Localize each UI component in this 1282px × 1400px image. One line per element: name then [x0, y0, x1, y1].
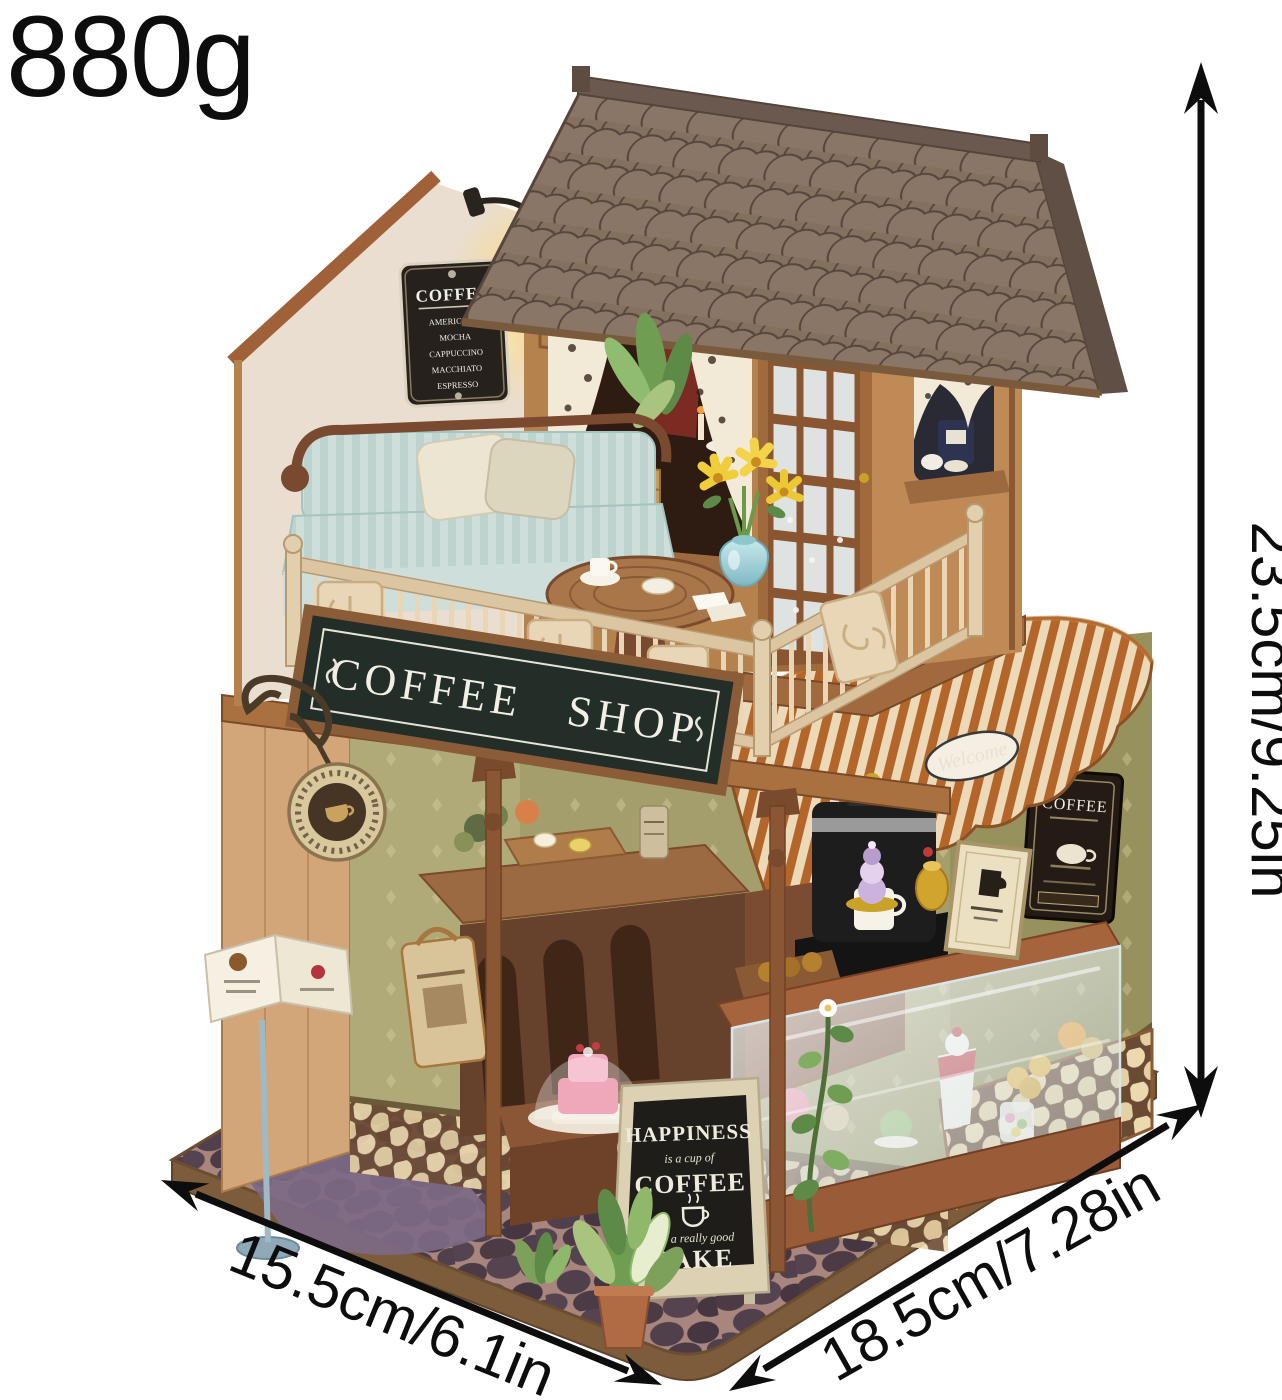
menu-item: MOCHA — [439, 331, 472, 343]
height-dimension-arrow: 23.5cm/9.25in — [1184, 62, 1282, 1118]
sofa-armrest — [281, 464, 309, 492]
machine-light — [923, 847, 933, 857]
arrow-upright-icon — [1156, 1104, 1203, 1141]
tote-bag — [400, 925, 488, 1068]
sugar-bowl — [642, 578, 674, 594]
dollhouse-photo: COFFEE Welcome — [0, 0, 1282, 1400]
product-image: COFFEE Welcome — [0, 0, 1282, 1400]
vase-body — [720, 538, 768, 586]
teapot — [515, 800, 539, 824]
weight-label: 880g — [6, 0, 254, 121]
coffee-cup — [534, 833, 556, 847]
ridge-finial — [572, 66, 590, 92]
door-handle — [859, 473, 869, 483]
throw-pillow — [484, 437, 576, 521]
teacup — [590, 558, 610, 576]
height-label: 23.5cm/9.25in — [1239, 522, 1282, 899]
framed-sign — [946, 842, 1031, 958]
ridge-finial — [1030, 134, 1048, 160]
board-line-script1: is a cup of — [664, 1150, 716, 1166]
coffee-cup — [569, 838, 591, 852]
board-line-happiness: HAPPINESS — [625, 1119, 753, 1147]
candle — [698, 414, 704, 440]
canister — [640, 806, 668, 858]
